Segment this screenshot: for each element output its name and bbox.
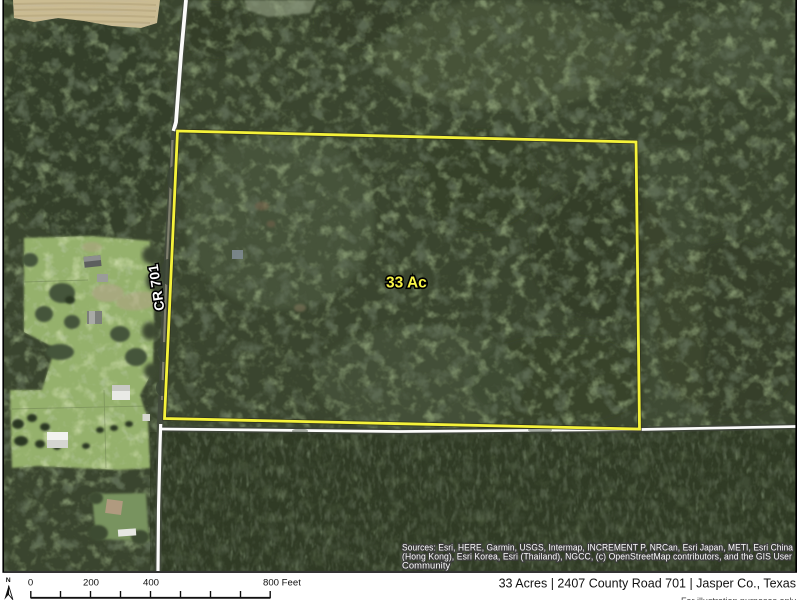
svg-text:0: 0 — [28, 578, 33, 589]
svg-text:33 Acres | 2407 County Road 70: 33 Acres | 2407 County Road 701 | Jasper… — [499, 577, 796, 591]
svg-text:33 Ac: 33 Ac — [386, 275, 427, 292]
svg-text:200: 200 — [83, 578, 99, 589]
svg-text:800 Feet: 800 Feet — [263, 578, 301, 589]
svg-text:N: N — [6, 577, 11, 584]
svg-text:For illustration purposes only: For illustration purposes only — [681, 596, 797, 600]
svg-text:400: 400 — [143, 578, 159, 589]
svg-text:(Hong Kong), Esri Korea, Esri: (Hong Kong), Esri Korea, Esri (Thailand)… — [402, 551, 792, 562]
svg-text:Community: Community — [402, 560, 451, 571]
